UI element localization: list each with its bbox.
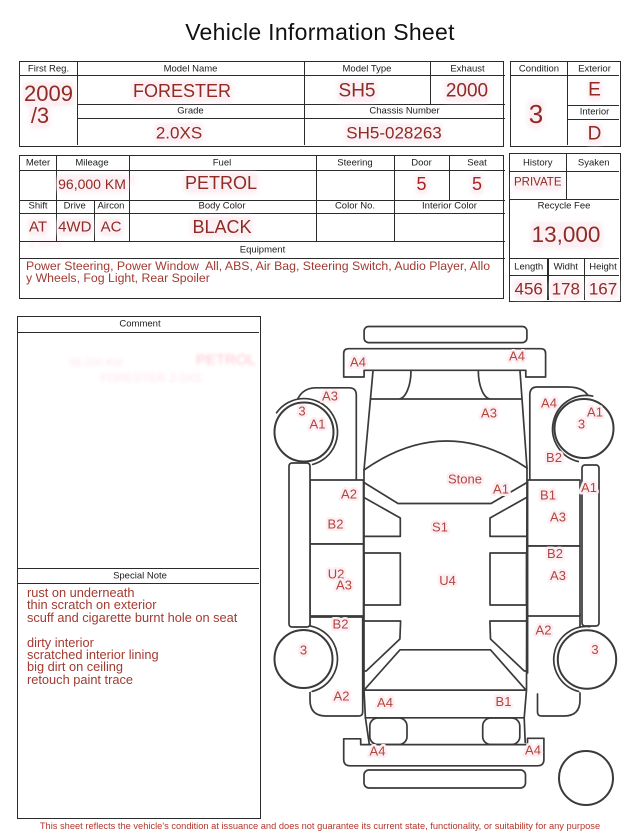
svg-text:B2: B2 bbox=[546, 450, 562, 465]
svg-text:A3: A3 bbox=[481, 406, 497, 421]
svg-text:Stone: Stone bbox=[448, 472, 482, 487]
svg-text:A4: A4 bbox=[509, 349, 525, 364]
svg-text:S1: S1 bbox=[432, 520, 448, 535]
svg-text:B2: B2 bbox=[547, 546, 563, 561]
svg-text:A4: A4 bbox=[350, 355, 366, 370]
svg-text:A3: A3 bbox=[322, 389, 338, 404]
svg-text:B1: B1 bbox=[540, 488, 556, 503]
svg-text:A1: A1 bbox=[587, 405, 603, 420]
svg-text:A2: A2 bbox=[334, 689, 350, 704]
svg-text:A1: A1 bbox=[581, 480, 597, 495]
svg-text:A3: A3 bbox=[550, 568, 566, 583]
svg-text:A1: A1 bbox=[310, 417, 326, 432]
svg-text:A2: A2 bbox=[536, 623, 552, 638]
svg-text:B2: B2 bbox=[328, 517, 344, 532]
svg-text:3: 3 bbox=[298, 404, 305, 419]
svg-text:U4: U4 bbox=[439, 573, 456, 588]
svg-text:A3: A3 bbox=[550, 510, 566, 525]
svg-text:B1: B1 bbox=[496, 694, 512, 709]
svg-text:3: 3 bbox=[300, 643, 307, 658]
svg-text:3: 3 bbox=[591, 642, 598, 657]
svg-text:A2: A2 bbox=[341, 487, 357, 502]
svg-text:A4: A4 bbox=[377, 695, 393, 710]
svg-text:A4: A4 bbox=[541, 396, 557, 411]
svg-text:A1: A1 bbox=[493, 482, 509, 497]
svg-text:3: 3 bbox=[578, 417, 585, 432]
svg-text:A4: A4 bbox=[525, 743, 541, 758]
svg-text:B2: B2 bbox=[333, 617, 349, 632]
svg-text:A3: A3 bbox=[336, 578, 352, 593]
svg-text:A4: A4 bbox=[370, 744, 386, 759]
